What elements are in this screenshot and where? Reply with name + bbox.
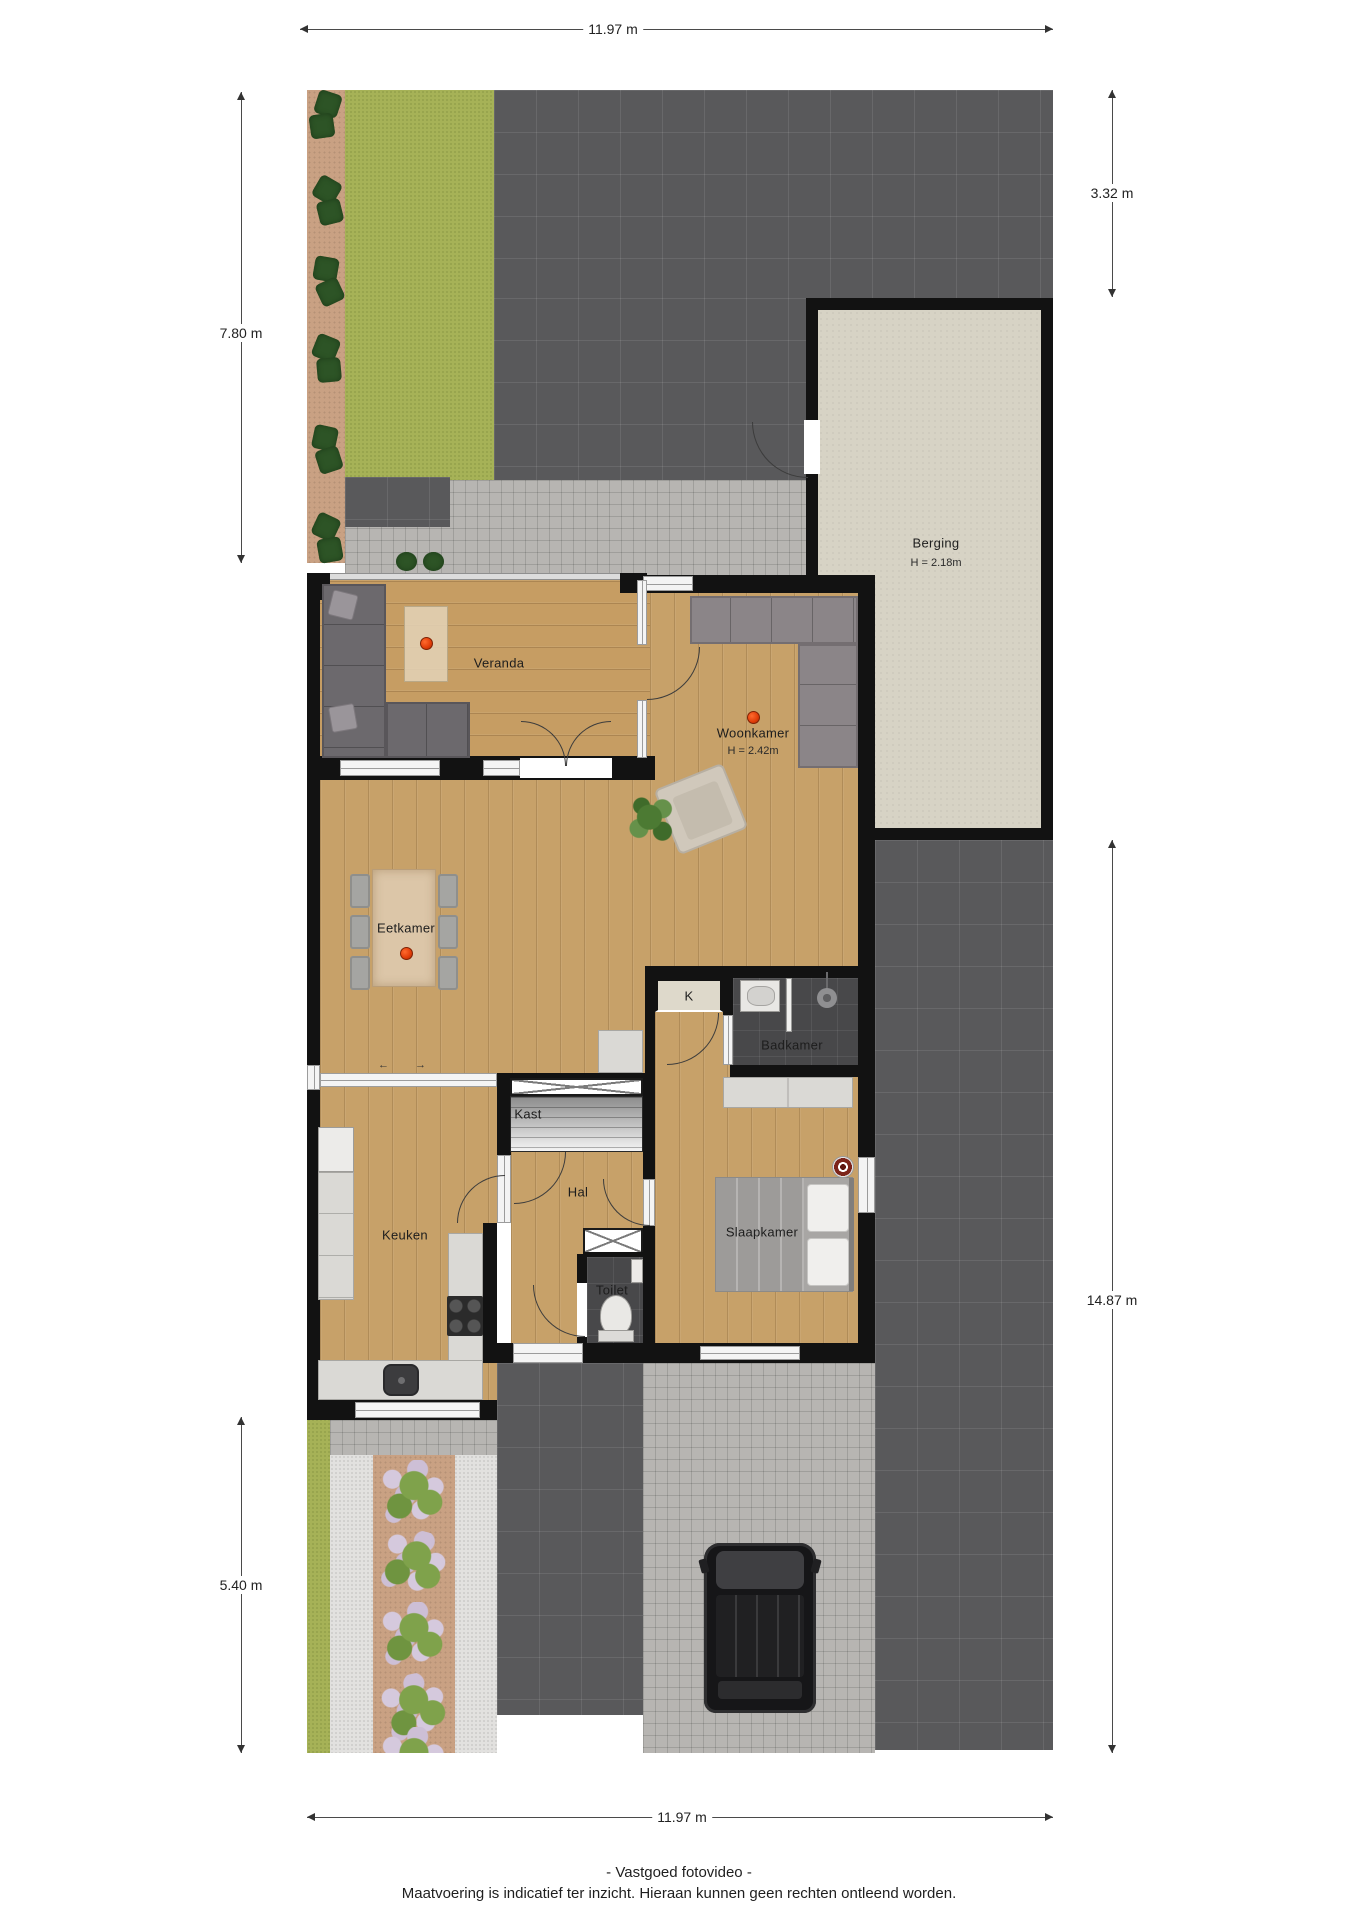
wall-left-of-k [645,966,655,1078]
dining-chair [438,956,458,990]
window-keuken-south [355,1402,480,1418]
window-veranda-south-1 [340,760,440,776]
dim-bottom-label: 11.97 m [652,1808,712,1826]
window-slaapkamer-east [858,1157,875,1213]
room-label-toilet: Toilet [596,1283,628,1298]
room-label-k: K [685,988,694,1003]
dim-left-upper-arrow-bottom [237,555,245,563]
dim-right-lower-arrow-bottom [1108,1745,1116,1753]
dim-left-lower-arrow-bottom [237,1745,245,1753]
patio-paving-upper [494,90,1053,298]
dim-top-line [300,29,1053,30]
front-path-dark [497,1363,643,1715]
dim-top-arrow-left [300,25,308,33]
woonkamer-sofa-top [690,596,858,644]
dim-bottom-arrow-left [307,1813,315,1821]
potted-plant-icon [396,552,417,571]
glass-divider-veranda-upper [637,580,647,645]
dim-bottom-arrow-right [1045,1813,1053,1821]
toilet-sink [631,1259,643,1283]
room-label-kast: Kast [514,1107,541,1122]
room-label-badkamer: Badkamer [761,1038,823,1053]
room-label-woonkamer: Woonkamer [717,726,790,741]
dim-right-upper-arrow-top [1108,90,1116,98]
garden-soil-border-top [307,90,345,563]
flower-bush [378,1602,450,1666]
window-veranda-south-2 [483,760,520,776]
room-label-eetkamer: Eetkamer [377,921,435,936]
dim-right-lower-arrow-top [1108,840,1116,848]
patio-paving-left-of-berging [494,298,806,480]
panorama-marker-icon[interactable] [420,637,433,650]
fridge [318,1127,354,1172]
footer-credit: - Vastgoed fotovideo - [0,1864,1358,1881]
wall-keuken-east-lower [483,1223,497,1363]
flower-bush [378,1727,450,1753]
veranda-sofa-chaise [386,702,470,758]
plant-icon [626,792,678,848]
toilet-bowl-icon [600,1295,632,1335]
footer-disclaimer: Maatvoering is indicatief ter inzicht. H… [0,1885,1358,1902]
flower-bush [378,1460,450,1524]
panorama-marker-icon[interactable] [747,711,760,724]
toilet-cistern [598,1330,634,1342]
window-woonkamer-top [643,576,693,591]
flowerbed-soil [373,1455,455,1753]
sink-drain [398,1377,405,1384]
potted-plant-icon [423,552,444,571]
car-windshield [716,1551,804,1589]
dining-chair [350,956,370,990]
wall-badkamer-south [730,1065,858,1077]
room-label-hal: Hal [568,1185,588,1200]
woonkamer-cabinet [598,1030,643,1073]
slide-arrow-left-icon: ← [378,1060,389,1071]
kitchen-cabinets-left [318,1172,354,1300]
stove-icon [447,1296,483,1336]
toilet-void-xbox [583,1228,643,1254]
dining-chair [438,915,458,949]
wall-stair-left [497,1073,511,1155]
badkamer-sink [740,980,780,1012]
kitchen-sink-icon [383,1364,419,1396]
glass-divider-veranda-lower [637,700,647,758]
dim-left-upper-arrow-top [237,92,245,100]
window-eetkamer-left [307,1065,320,1090]
car-rear-window [718,1681,802,1699]
dining-chair [350,915,370,949]
dim-top-arrow-right [1045,25,1053,33]
k-closet: K [655,978,723,1012]
dim-right-upper-label: 3.32 m [1086,184,1139,202]
window-slaapkamer-south [700,1346,800,1360]
car-roof [716,1595,804,1677]
sliding-door-eetkamer-keuken [320,1073,497,1087]
room-label-keuken: Keuken [382,1228,428,1243]
room-height-berging: H = 2.18m [910,557,961,569]
bush-icon [308,112,335,139]
badkamer-divider [786,978,792,1032]
dining-chair [350,874,370,908]
bush-icon [316,357,342,383]
dim-left-upper-label: 7.80 m [215,324,268,342]
badkamer-sink-bowl [747,986,775,1006]
armchair-seat [672,780,734,841]
flower-bush [373,1522,455,1602]
veranda-open-edge [330,573,630,580]
side-paving-right [875,840,1053,1750]
wardrobe [723,1077,853,1108]
garden-grass-top [345,90,494,480]
panorama-marker-icon[interactable] [400,947,413,960]
staircase [510,1096,643,1152]
doorway-badkamer [723,1015,733,1065]
paving-below-grass [345,477,450,527]
bush-icon [316,536,344,564]
detector-icon [832,1156,854,1178]
room-height-woonkamer: H = 2.42m [727,745,778,757]
shower-head-icon [817,988,837,1008]
sofa-pillow [328,703,358,733]
paving-strip-bottom-left [330,1420,497,1455]
wall-right-exterior [858,575,875,1363]
headboard [849,1178,854,1291]
room-label-veranda: Veranda [474,656,525,671]
bed-pillow [807,1184,849,1232]
slide-arrow-right-icon: → [415,1060,426,1071]
car [700,1543,820,1713]
bed-pillow [807,1238,849,1286]
woonkamer-sofa-right [798,644,858,768]
front-door [513,1343,583,1363]
dim-left-lower-arrow-top [237,1417,245,1425]
room-label-berging: Berging [913,536,960,551]
stair-void-xbox [510,1078,643,1096]
dining-chair [438,874,458,908]
dim-right-upper-arrow-bottom [1108,289,1116,297]
dim-top-label: 11.97 m [583,20,643,38]
dim-right-lower-label: 14.87 m [1082,1291,1143,1309]
room-label-slaapkamer: Slaapkamer [726,1225,798,1240]
floorplan-canvas: Berging H = 2.18m ← → Kast K [0,0,1358,1920]
dim-left-lower-label: 5.40 m [215,1576,268,1594]
